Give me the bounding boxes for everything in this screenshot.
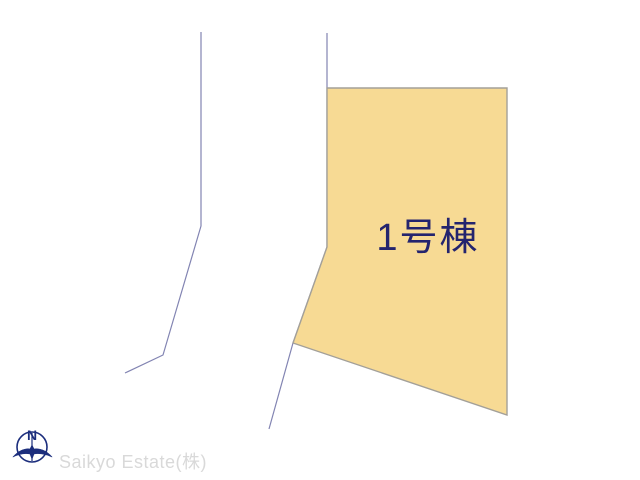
site-plan-canvas: 1号棟 N Saikyo Estate(株) (0, 0, 640, 480)
road-boundaries (125, 32, 327, 429)
compass-wings-icon (13, 445, 52, 459)
road-boundary-left (125, 32, 201, 373)
compass: N (13, 427, 52, 462)
compass-north-label: N (27, 427, 37, 443)
site-plan-drawing: 1号棟 N (0, 0, 640, 480)
lot-label: 1号棟 (376, 217, 479, 259)
watermark-text: Saikyo Estate(株) (59, 448, 207, 474)
road-boundary-right (269, 33, 327, 429)
